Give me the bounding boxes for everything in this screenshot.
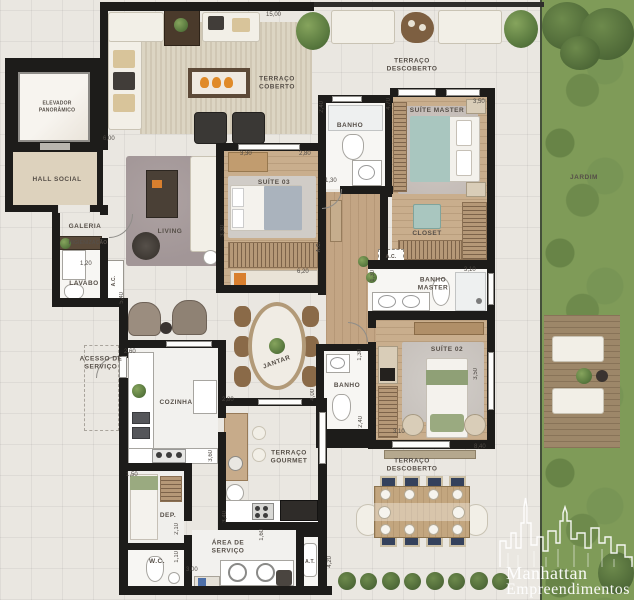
elevator-door bbox=[40, 143, 70, 150]
rustic-table bbox=[401, 12, 434, 43]
burner bbox=[176, 452, 182, 458]
dimension-label: 5,40 bbox=[119, 292, 125, 304]
label-terraco-gourmet: TERRAÇO GOURMET bbox=[271, 450, 308, 467]
dimension-label: 1,30 bbox=[357, 349, 363, 361]
hedge-bush bbox=[470, 572, 488, 590]
dimension-label: 2,80 bbox=[222, 397, 234, 403]
burner bbox=[255, 506, 260, 511]
dep-rack bbox=[160, 476, 182, 502]
sofa-cushion bbox=[208, 16, 224, 30]
daybed bbox=[331, 10, 395, 44]
skyline-icon bbox=[498, 495, 634, 567]
dimension-label: 2,80 bbox=[299, 151, 311, 157]
terrace-tree bbox=[504, 10, 538, 48]
suite02-desk bbox=[414, 322, 484, 335]
burner bbox=[255, 513, 260, 518]
label-wc: W.C. bbox=[149, 558, 165, 566]
dimension-label: 2,60 bbox=[124, 349, 136, 355]
plate bbox=[452, 489, 463, 500]
closet-wardrobe bbox=[398, 240, 462, 260]
table-plate bbox=[419, 24, 426, 31]
dining-chair bbox=[234, 306, 251, 327]
wall bbox=[184, 463, 192, 521]
plate bbox=[428, 489, 439, 500]
burner bbox=[263, 506, 268, 511]
sink bbox=[378, 295, 396, 308]
wall bbox=[216, 285, 326, 293]
burner bbox=[166, 452, 172, 458]
terrace-tree bbox=[296, 12, 330, 50]
hall-door-gap bbox=[58, 205, 90, 213]
wall bbox=[385, 95, 392, 197]
laundry-item bbox=[198, 578, 206, 586]
flame bbox=[224, 77, 233, 88]
media-console bbox=[146, 170, 178, 218]
shower bbox=[455, 272, 486, 311]
suite03-wardrobe bbox=[228, 242, 318, 268]
hedge-bush bbox=[382, 572, 400, 590]
bar-sink bbox=[228, 456, 243, 471]
wall bbox=[119, 378, 128, 588]
master-wardrobe bbox=[393, 102, 407, 192]
sink bbox=[330, 357, 345, 369]
plate bbox=[404, 524, 415, 535]
coffee-table bbox=[132, 232, 160, 260]
label-suite02: SUÍTE 02 bbox=[431, 346, 463, 354]
dining-chair bbox=[302, 306, 319, 327]
wall bbox=[368, 320, 376, 328]
sofa-cushion bbox=[113, 94, 135, 112]
label-suite-master: SUÍTE MASTER bbox=[410, 107, 464, 115]
burner bbox=[156, 452, 162, 458]
plate bbox=[380, 489, 391, 500]
wall bbox=[100, 238, 108, 302]
dimension-label: 1,50 bbox=[126, 472, 138, 478]
label-hall-social: HALL SOCIAL bbox=[32, 176, 81, 184]
label-at: A.T. bbox=[305, 559, 315, 566]
kitchen-pass-window bbox=[166, 341, 212, 347]
dimension-label: 2,10 bbox=[174, 523, 180, 535]
label-ac-lavabo: A.C. bbox=[111, 276, 118, 287]
wall bbox=[218, 348, 226, 418]
bed-blanket bbox=[264, 186, 302, 230]
wall bbox=[52, 298, 126, 307]
sofa-cushion bbox=[232, 18, 250, 32]
label-acesso: ACESSO DE SERVIÇO bbox=[80, 356, 123, 373]
hedge-bush bbox=[338, 572, 356, 590]
wall bbox=[120, 543, 186, 550]
label-area-servico: ÁREA DE SERVIÇO bbox=[212, 540, 245, 557]
round-nightstand bbox=[464, 414, 486, 436]
wall bbox=[100, 205, 108, 215]
sitting-armchair bbox=[128, 302, 161, 336]
dimension-label: 1,10 bbox=[174, 551, 180, 563]
hedge-bush bbox=[404, 573, 421, 590]
dimension-label: 3,50 bbox=[473, 99, 485, 105]
sun-lounger bbox=[552, 336, 604, 362]
round-nightstand bbox=[402, 414, 424, 436]
watermark-line2: Empreendimentos bbox=[506, 581, 630, 599]
pillow bbox=[456, 150, 472, 176]
plate bbox=[428, 524, 439, 535]
table-plant bbox=[269, 338, 285, 354]
sink bbox=[402, 295, 420, 308]
wall bbox=[314, 2, 544, 7]
wall bbox=[218, 522, 322, 530]
toilet bbox=[342, 134, 364, 160]
daybed bbox=[438, 10, 502, 44]
dimension-label: 3,10 bbox=[393, 429, 405, 435]
wall bbox=[100, 2, 314, 11]
gourmet-window bbox=[319, 412, 326, 464]
dimension-label: 6,00 bbox=[103, 136, 115, 142]
wall bbox=[52, 205, 60, 307]
plate bbox=[378, 506, 391, 519]
label-terraco-descoberto-bottom: TERRAÇO DESCOBERTO bbox=[387, 458, 438, 475]
sofa-cushion bbox=[113, 72, 135, 90]
sofa-cushion bbox=[113, 50, 135, 68]
label-ac-closet: A.C. bbox=[386, 254, 397, 261]
deck-plant bbox=[576, 368, 592, 384]
watermark: Manhattan Empreendimentos bbox=[498, 495, 634, 600]
pillow bbox=[232, 188, 244, 207]
dimension-label: 1,60 bbox=[259, 529, 265, 541]
jantar-gourmet-door bbox=[258, 399, 302, 405]
hedge-bush bbox=[448, 573, 465, 590]
banho03-window bbox=[332, 96, 362, 102]
suite03-window bbox=[238, 144, 300, 150]
dining-chair bbox=[234, 366, 251, 387]
dimension-label: 3,50 bbox=[473, 368, 479, 380]
pillow bbox=[232, 209, 244, 228]
label-elevador: ELEVADOR PANORÂMICO bbox=[39, 101, 75, 114]
washer bbox=[228, 563, 247, 582]
wall bbox=[368, 311, 490, 320]
l-sofa-top bbox=[108, 12, 164, 42]
label-closet: CLOSET bbox=[412, 230, 441, 238]
counter-plant bbox=[132, 384, 146, 398]
washer bbox=[256, 563, 275, 582]
dimension-label: 1,30 bbox=[370, 270, 376, 282]
suite02-terrace-door bbox=[392, 441, 450, 448]
drink-table bbox=[160, 322, 172, 334]
wall bbox=[296, 530, 304, 590]
label-living: LIVING bbox=[158, 228, 183, 236]
wall bbox=[380, 194, 388, 262]
label-terraco-descoberto-top: TERRAÇO DESCOBERTO bbox=[387, 58, 438, 75]
master-window bbox=[398, 89, 436, 96]
dimension-label: 4,00 bbox=[310, 389, 316, 401]
dimension-label: 3,30 bbox=[240, 151, 252, 157]
label-cozinha: COZINHA bbox=[159, 399, 192, 407]
chair bbox=[276, 570, 292, 586]
banho-master-window bbox=[488, 273, 494, 305]
nightstand bbox=[466, 182, 486, 197]
bar-stool bbox=[252, 448, 266, 462]
wall bbox=[296, 530, 322, 537]
pillow bbox=[456, 120, 472, 146]
label-dep: DEP. bbox=[160, 512, 176, 520]
wall bbox=[120, 463, 192, 471]
dimension-label: 3,60 bbox=[208, 450, 214, 462]
terrace-armchair bbox=[232, 112, 265, 144]
dimension-label: 15,00 bbox=[266, 12, 281, 18]
closet-pouf bbox=[413, 204, 441, 229]
suite02-window bbox=[488, 352, 494, 410]
dimension-label: 4,70 bbox=[386, 98, 392, 110]
flame bbox=[212, 77, 221, 88]
console-decor bbox=[152, 180, 162, 188]
master-blanket bbox=[410, 116, 450, 182]
floor-plan: ELEVADOR PANORÂMICO HALL SOCIAL GALERIA … bbox=[0, 0, 634, 600]
sun-lounger bbox=[552, 388, 604, 414]
console-plant bbox=[174, 18, 188, 32]
garden-bush bbox=[560, 36, 600, 70]
hedge-bush bbox=[360, 573, 377, 590]
kitchen-sink bbox=[132, 427, 150, 439]
burner bbox=[263, 513, 268, 518]
toilet bbox=[332, 394, 351, 421]
dimension-label: 6,20 bbox=[297, 269, 309, 275]
grill bbox=[280, 500, 318, 521]
bed-blanket-band bbox=[426, 370, 468, 385]
dimension-label: 3,30 bbox=[220, 225, 226, 237]
label-banho-master: BANHO MASTER bbox=[418, 277, 448, 294]
label-galeria: GALERIA bbox=[69, 223, 102, 231]
dimension-label: 2,40 bbox=[319, 101, 325, 113]
dimension-label: 2,40 bbox=[358, 416, 364, 428]
tv bbox=[380, 368, 395, 381]
master-window bbox=[446, 89, 480, 96]
dimension-label: 3,00 bbox=[186, 567, 198, 573]
label-higienizacao: HIGIENIZAÇÃO bbox=[69, 240, 108, 247]
closet-wardrobe bbox=[462, 202, 487, 260]
label-banho02: BANHO bbox=[334, 382, 360, 390]
bar-stool bbox=[252, 426, 266, 440]
bed-pillow bbox=[430, 414, 464, 432]
dimension-label: 1,20 bbox=[80, 261, 92, 267]
dimension-label: 1,30 bbox=[325, 178, 337, 184]
wall bbox=[340, 186, 393, 194]
label-jardim: JARDIM bbox=[570, 174, 598, 182]
label-lavabo: LAVABO bbox=[69, 280, 98, 288]
wall bbox=[216, 148, 224, 292]
plate bbox=[452, 524, 463, 535]
wall bbox=[316, 344, 376, 351]
fridge bbox=[193, 380, 217, 414]
deck-table bbox=[596, 370, 608, 382]
plate bbox=[404, 489, 415, 500]
sink bbox=[358, 165, 375, 180]
label-suite03: SUÍTE 03 bbox=[258, 179, 290, 187]
kitchen-sink bbox=[132, 412, 150, 424]
label-ac-corridor: A.C. bbox=[316, 242, 323, 253]
label-terraco-coberto: TERRAÇO COBERTO bbox=[259, 76, 295, 93]
dimension-label: 4,20 bbox=[327, 556, 333, 568]
label-banho03: BANHO bbox=[337, 122, 363, 130]
flame bbox=[200, 77, 209, 88]
sitting-armchair bbox=[172, 300, 207, 335]
table-plate bbox=[408, 20, 415, 27]
dep-pillow bbox=[130, 476, 158, 490]
hedge-bush bbox=[426, 572, 444, 590]
terrace-armchair bbox=[194, 112, 227, 144]
plate bbox=[452, 506, 465, 519]
small-sink bbox=[168, 572, 180, 584]
shower-drain bbox=[476, 298, 482, 304]
sideboard-decor bbox=[234, 273, 246, 285]
plate bbox=[380, 524, 391, 535]
dimension-label: 8,40 bbox=[474, 444, 486, 450]
dimension-label: 3,10 bbox=[464, 267, 476, 273]
dimension-label: 3,40 bbox=[222, 511, 228, 523]
